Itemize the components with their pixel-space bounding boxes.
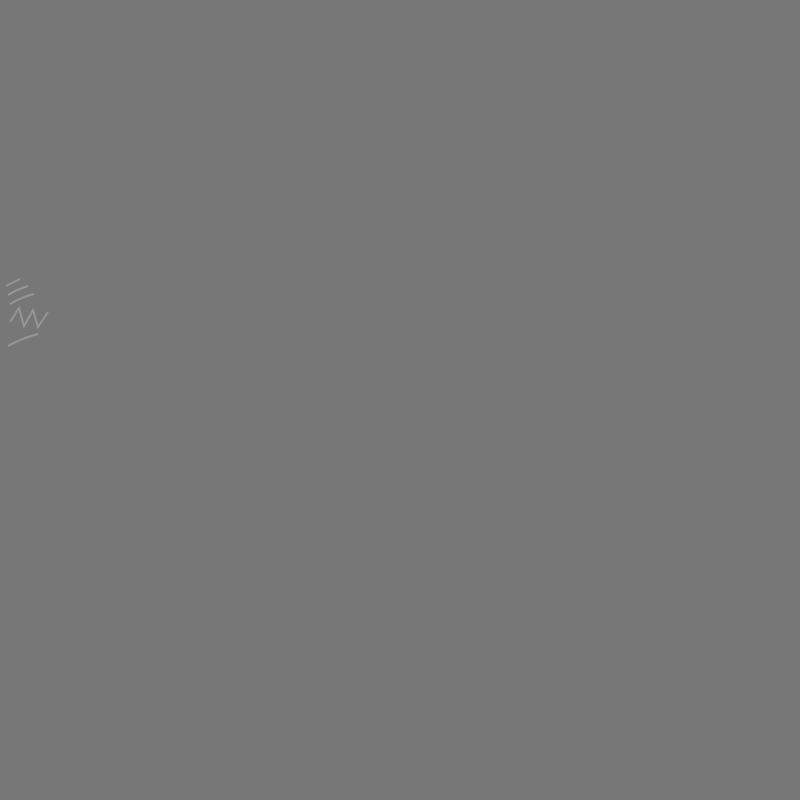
etched-glyphs-icon xyxy=(0,0,800,800)
scene-root xyxy=(0,0,800,800)
